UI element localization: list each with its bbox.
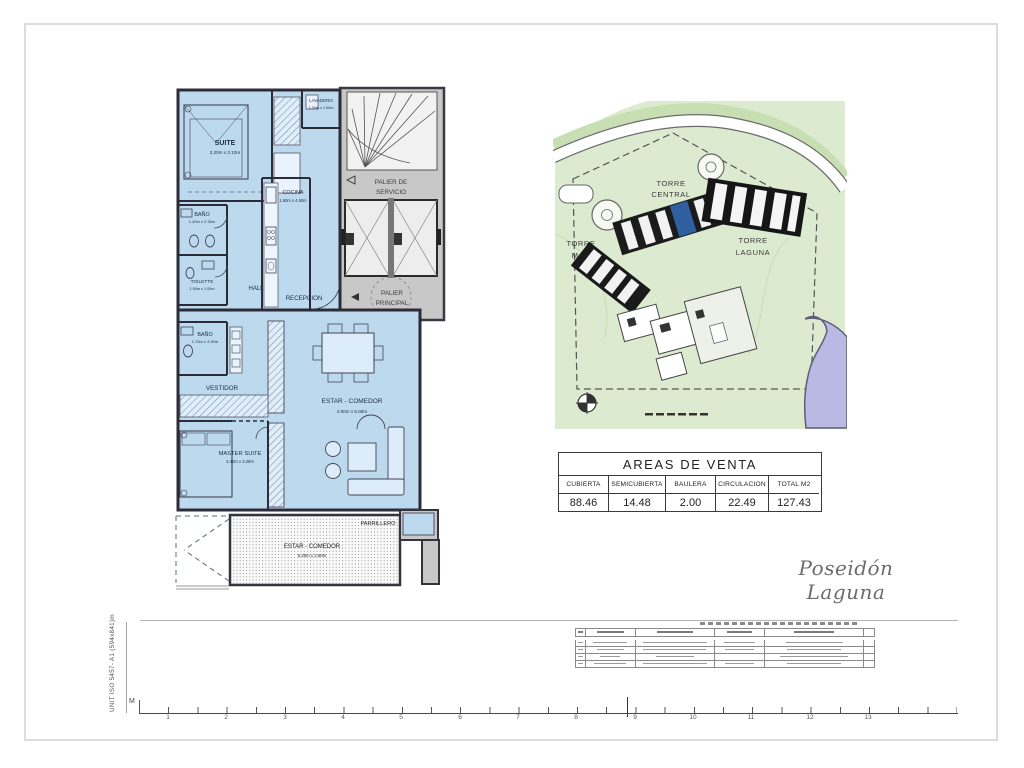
areas-val-baulera: 2.00	[666, 494, 716, 511]
paper-size-note: UNIT ISO 5457- A1 (594x841)m	[109, 614, 116, 712]
schedule-row	[575, 661, 875, 668]
master-suite-dims: 3.40m x 3.20m	[226, 459, 254, 464]
bano2-label: BAÑO	[197, 331, 212, 338]
ruler-number: 4	[341, 714, 345, 721]
toilette-label: TOILETTE	[191, 279, 214, 285]
ruler-number: 10	[689, 714, 696, 721]
sofa	[348, 479, 404, 495]
bano1-label: BAÑO	[194, 211, 209, 218]
torre-laguna-label2: LAGUNA	[736, 248, 770, 257]
schedule-row	[575, 640, 875, 647]
dining-table	[322, 333, 374, 373]
document-sheet: PALIER DE SERVICIO PALIER PRINCIPAL LAVA…	[0, 0, 1024, 768]
torre-central-label2: CENTRAL	[651, 190, 690, 199]
ruler-number: 9	[633, 714, 637, 721]
recepcion-label: RECEPCION	[286, 295, 323, 302]
titleblock-vline	[126, 622, 127, 713]
ruler-number: 13	[864, 714, 871, 721]
ruler-number: 7	[516, 714, 520, 721]
suite-label: SUITE	[215, 140, 236, 147]
cocina-dims: 1.60m x 4.50m	[279, 198, 307, 203]
torre-laguna-label: TORRE	[738, 236, 767, 245]
schedule-row	[575, 647, 875, 654]
ruler-number: 3	[283, 714, 287, 721]
projection-dashed	[176, 516, 229, 583]
areas-table-header-row: CUBIERTA SEMICUBIERTA BAULERA CIRCULACIO…	[559, 476, 821, 494]
palier-principal-label2: PRINCIPAL	[376, 300, 409, 307]
ruler-number: 5	[399, 714, 403, 721]
ruler-number: 12	[806, 714, 813, 721]
ruler-number: 8	[574, 714, 578, 721]
armchair	[326, 442, 341, 457]
areas-col-semicubierta: SEMICUBIERTA	[609, 476, 666, 494]
project-signature: Poseidón Laguna	[756, 556, 936, 604]
terraza-dims: 5.20m x 2.50m	[298, 553, 327, 558]
torre-central-label: TORRE	[656, 179, 685, 188]
schedule-row	[575, 654, 875, 661]
ruler-number: 11	[748, 714, 755, 721]
coffee-table	[348, 443, 376, 471]
estar-dims: 4.00m x 6.00m	[337, 409, 368, 414]
elevators	[341, 198, 441, 278]
areas-val-semicubierta: 14.48	[609, 494, 666, 511]
areas-col-baulera: BAULERA	[666, 476, 716, 494]
areas-table-value-row: 88.46 14.48 2.00 22.49 127.43	[559, 494, 821, 511]
apartment-floor-plan: PALIER DE SERVICIO PALIER PRINCIPAL LAVA…	[172, 83, 452, 598]
areas-val-cubierta: 88.46	[559, 494, 609, 511]
areas-table-title: AREAS DE VENTA	[559, 453, 821, 476]
palier-servicio-label2: SERVICIO	[376, 189, 406, 196]
palier-principal-label: PALIER	[381, 290, 403, 297]
areas-col-circulacion: CIRCULACION	[716, 476, 769, 494]
toilette-dims: 1.50m x 1.00m	[189, 287, 214, 291]
estar-label: ESTAR - COMEDOR	[322, 398, 383, 405]
palier-servicio-label: PALIER DE	[375, 179, 407, 186]
terraza-label: ESTAR - COMEDOR	[284, 544, 341, 550]
areas-val-total: 127.43	[769, 494, 819, 511]
terrace: PARRILLERO ESTAR - COMEDOR 5.20m x 2.50m	[230, 510, 439, 585]
fineprint-strip	[700, 622, 860, 625]
areas-col-cubierta: CUBIERTA	[559, 476, 609, 494]
lavadero-dims: 1.30m x 1.00m	[308, 106, 333, 110]
lavadero-label: LAVADERO	[309, 98, 333, 103]
areas-de-venta-table: AREAS DE VENTA CUBIERTA SEMICUBIERTA BAU…	[558, 452, 822, 512]
titleblock-line	[140, 620, 958, 621]
parrillero-label: PARRILLERO	[360, 521, 396, 527]
finish-schedule-table	[575, 628, 875, 668]
vestidor-label: VESTIDOR	[206, 385, 239, 392]
bano1-dims: 1.40m x 2.30m	[189, 219, 216, 224]
master-suite-label: MASTER SUITE	[219, 451, 262, 457]
ruler-number: 1	[166, 714, 170, 721]
cocina-label: COCINA	[283, 190, 304, 196]
scale-ruler: M 1 2 3 4 5 6 7 8 9 10 11 12 13	[139, 697, 963, 725]
areas-val-circulacion: 22.49	[716, 494, 769, 511]
site-plan: TORRE CENTRAL TORRE LAGUNA TORRE MAR	[553, 93, 847, 433]
areas-col-total: TOTAL M2	[769, 476, 819, 494]
service-core: PALIER DE SERVICIO PALIER PRINCIPAL	[340, 88, 444, 320]
suite-closet	[274, 97, 300, 145]
ruler-number: 6	[458, 714, 462, 721]
bano2-dims: 1.70m x 3.30m	[192, 339, 219, 344]
suite-dims: 3.20m x 3.10m	[210, 150, 241, 155]
ruler-number: 2	[224, 714, 228, 721]
ruler-baseline	[139, 713, 958, 714]
ruler-m-label: M	[129, 698, 135, 705]
schedule-header-row	[575, 628, 875, 637]
armchair	[326, 464, 341, 479]
